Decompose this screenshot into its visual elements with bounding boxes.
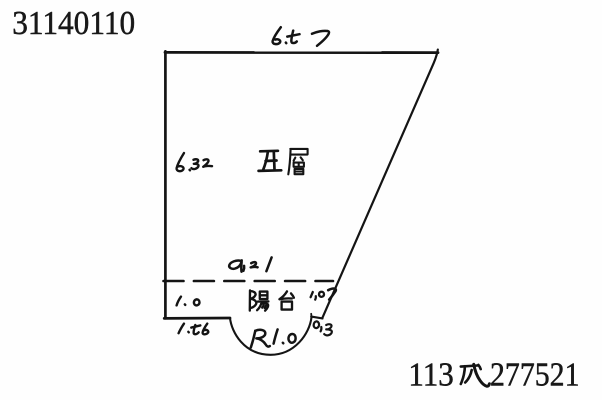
svg-text:277521: 277521 xyxy=(490,357,580,394)
svg-text:31140110: 31140110 xyxy=(12,5,135,42)
svg-text:113: 113 xyxy=(408,357,453,394)
